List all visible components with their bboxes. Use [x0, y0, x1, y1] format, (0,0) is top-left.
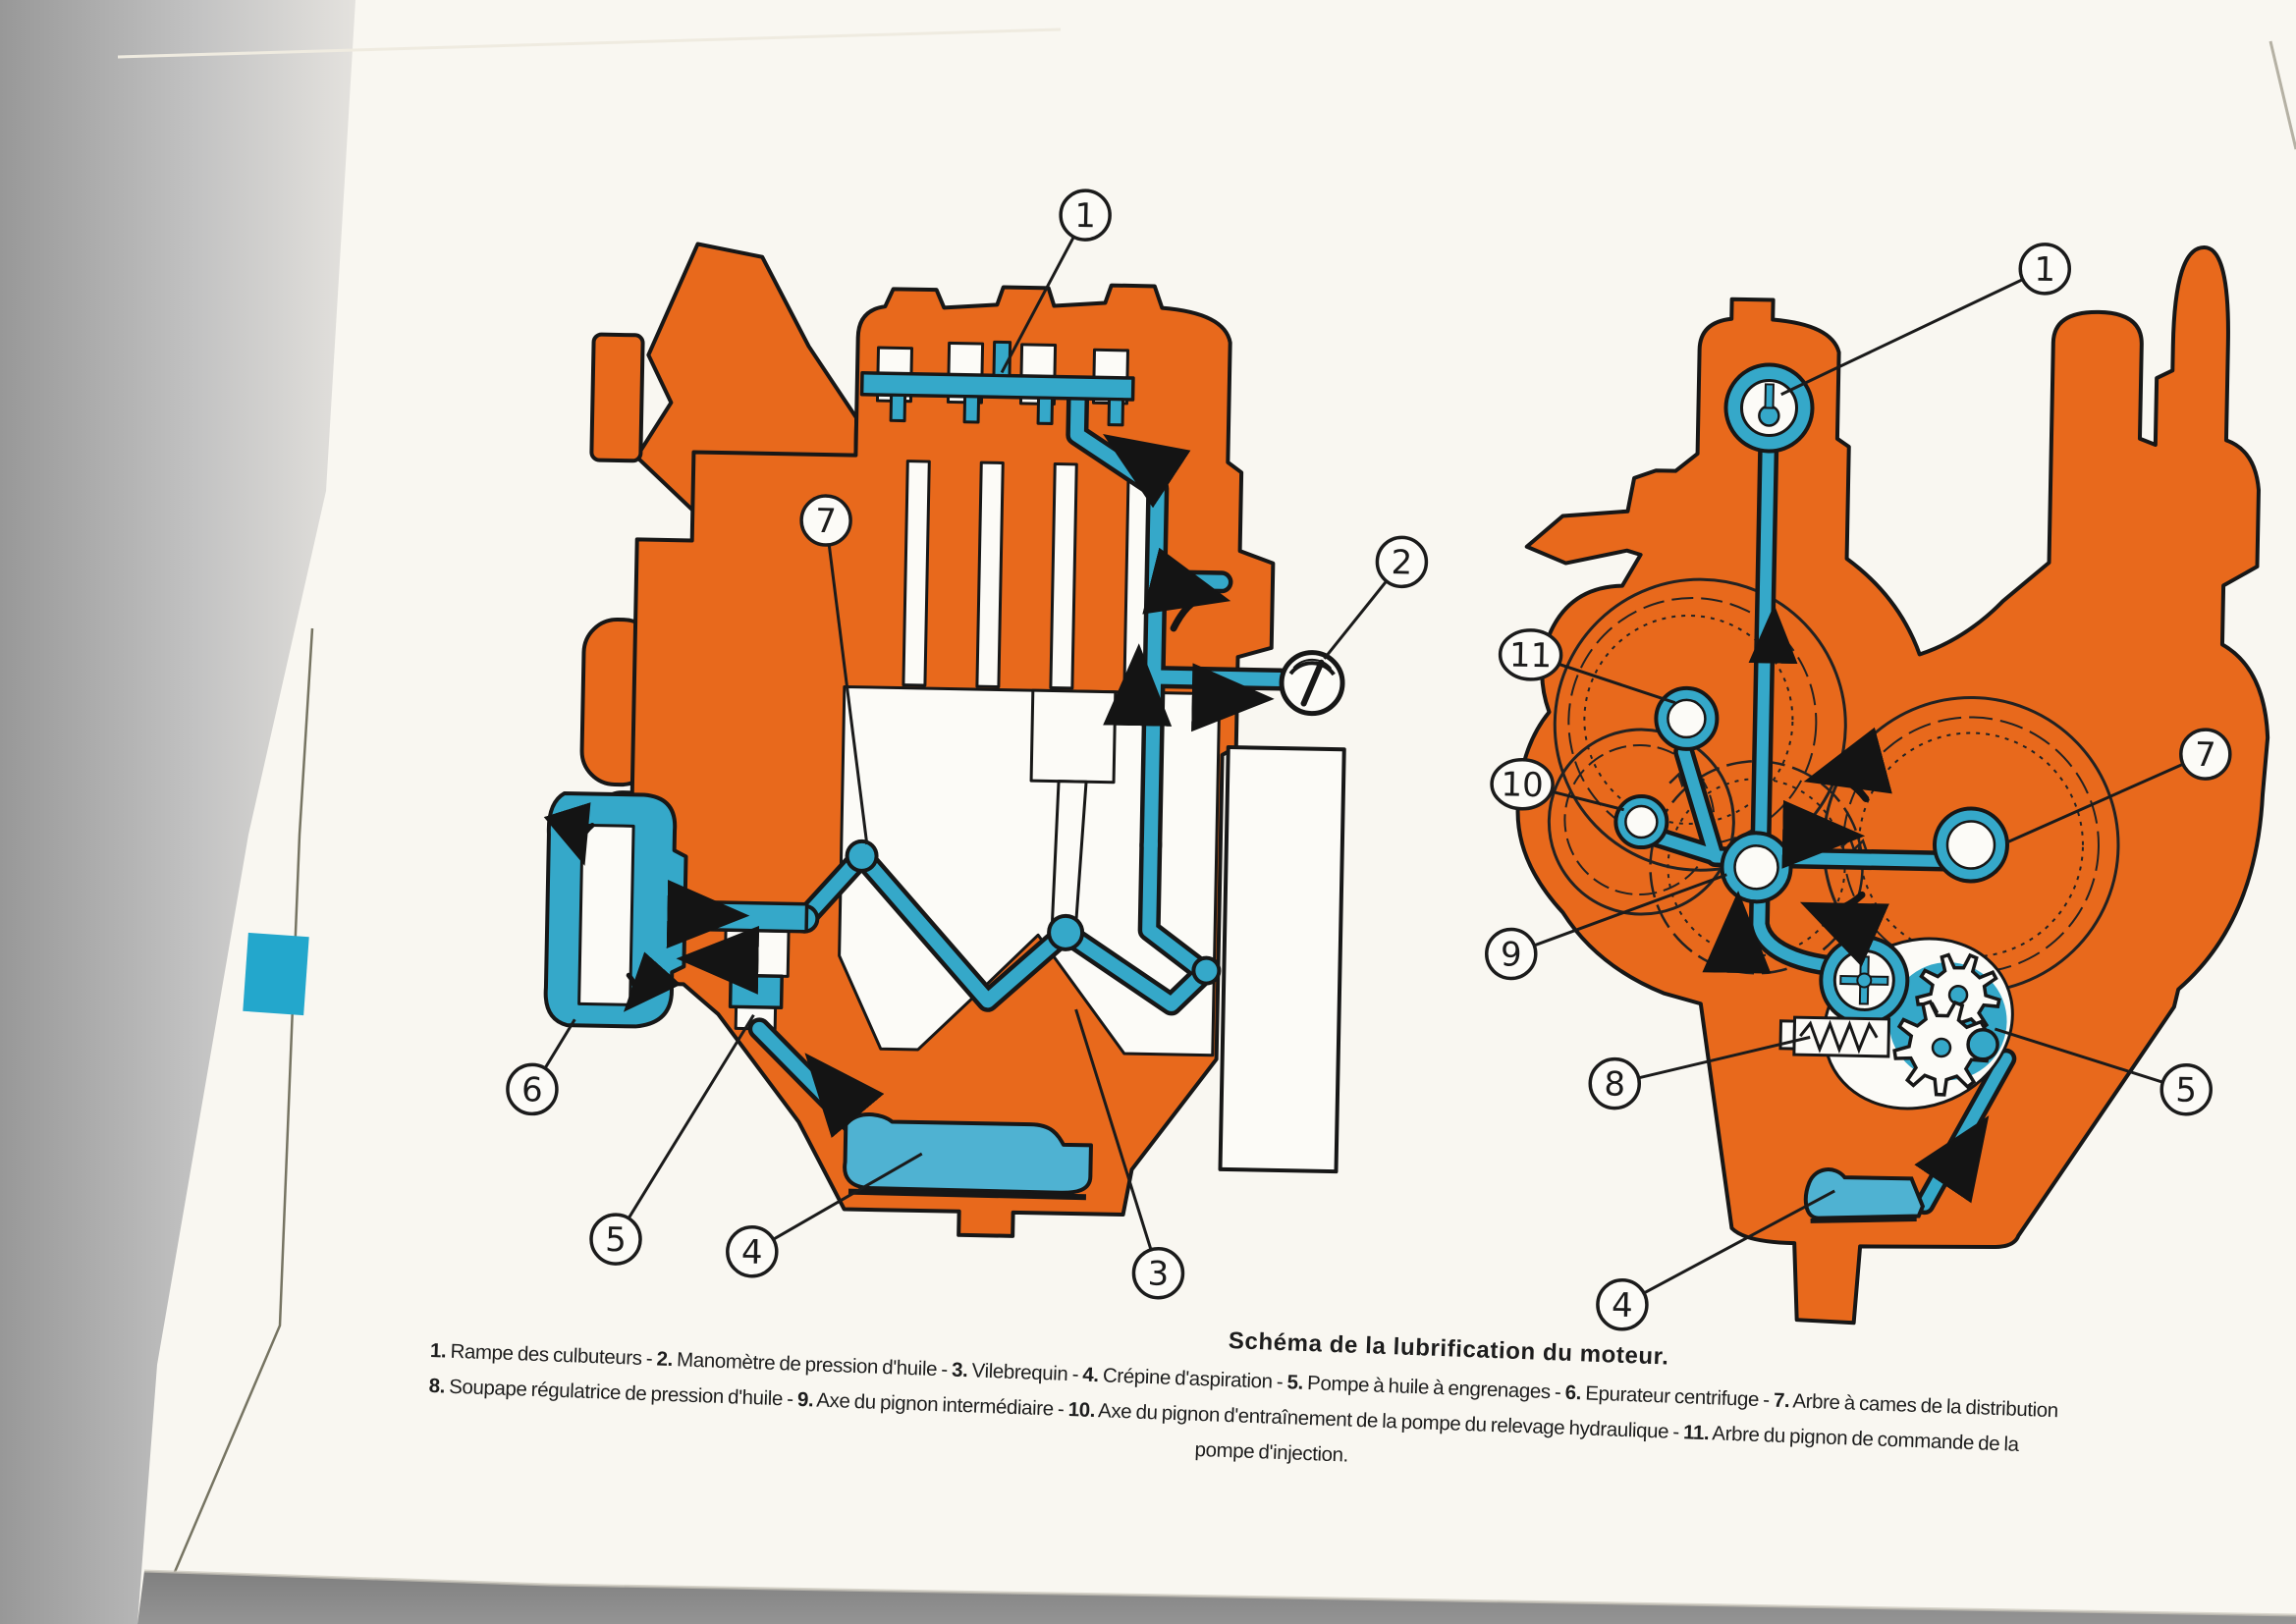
scanned-manual-page: 1726543 1111098475 Schéma de la lubrific…: [0, 0, 2296, 1624]
callout-number-7: 7: [815, 502, 837, 541]
callout-number-1: 1: [2034, 250, 2055, 290]
callout-number-9: 9: [1501, 935, 1522, 974]
callout-number-1: 1: [1074, 196, 1096, 236]
callout-number-10: 10: [1501, 765, 1544, 805]
gauge-oil-line: [1161, 677, 1281, 679]
callout-number-3: 3: [1147, 1254, 1169, 1293]
callout-number-7: 7: [2195, 735, 2216, 775]
callout-number-2: 2: [1391, 543, 1412, 582]
engine-front-silhouette: [1508, 235, 2277, 1330]
callout-number-8: 8: [1604, 1064, 1625, 1104]
pushrod-slot: [903, 461, 929, 685]
callout-number-4: 4: [1612, 1286, 1633, 1326]
pushrod-slot: [1051, 464, 1076, 688]
callout-number-11: 11: [1509, 635, 1553, 676]
desk-edge-bottom: [137, 1571, 2296, 1624]
right-engine-section: [1508, 235, 2277, 1330]
oil-pan-front: [1805, 1169, 1923, 1220]
rocker-shaft-end: [1725, 364, 1814, 453]
oil-pressure-gauge: [1281, 652, 1342, 714]
engine-side-part: [591, 334, 642, 460]
relief-valve-spring: [1780, 1017, 1889, 1056]
left-engine-section: [541, 242, 1353, 1242]
piston: [1031, 690, 1116, 783]
book-edge-left: [0, 0, 355, 1624]
bookmark-tab: [243, 933, 308, 1015]
oil-gallery-horizontal: [673, 901, 807, 932]
filter-rotor: [579, 825, 633, 1004]
callout-number-6: 6: [521, 1070, 543, 1110]
callout-leader-5: [616, 1012, 753, 1242]
callout-number-4: 4: [741, 1233, 763, 1272]
flywheel-housing: [1221, 747, 1344, 1171]
callout-number-5: 5: [2175, 1071, 2197, 1110]
pump-gear-axle: [1949, 986, 1967, 1003]
pump-shaft-end: [1968, 1029, 1998, 1059]
page-edge-top-right: [118, 29, 2296, 149]
pushrod-slot: [977, 462, 1003, 686]
oil-pump-top: [725, 930, 789, 976]
oil-pump-gears: [731, 975, 783, 1007]
pump-gear-axle: [1933, 1039, 1950, 1056]
callout-number-5: 5: [605, 1220, 627, 1260]
rocker-feed-line: [1761, 447, 1769, 855]
